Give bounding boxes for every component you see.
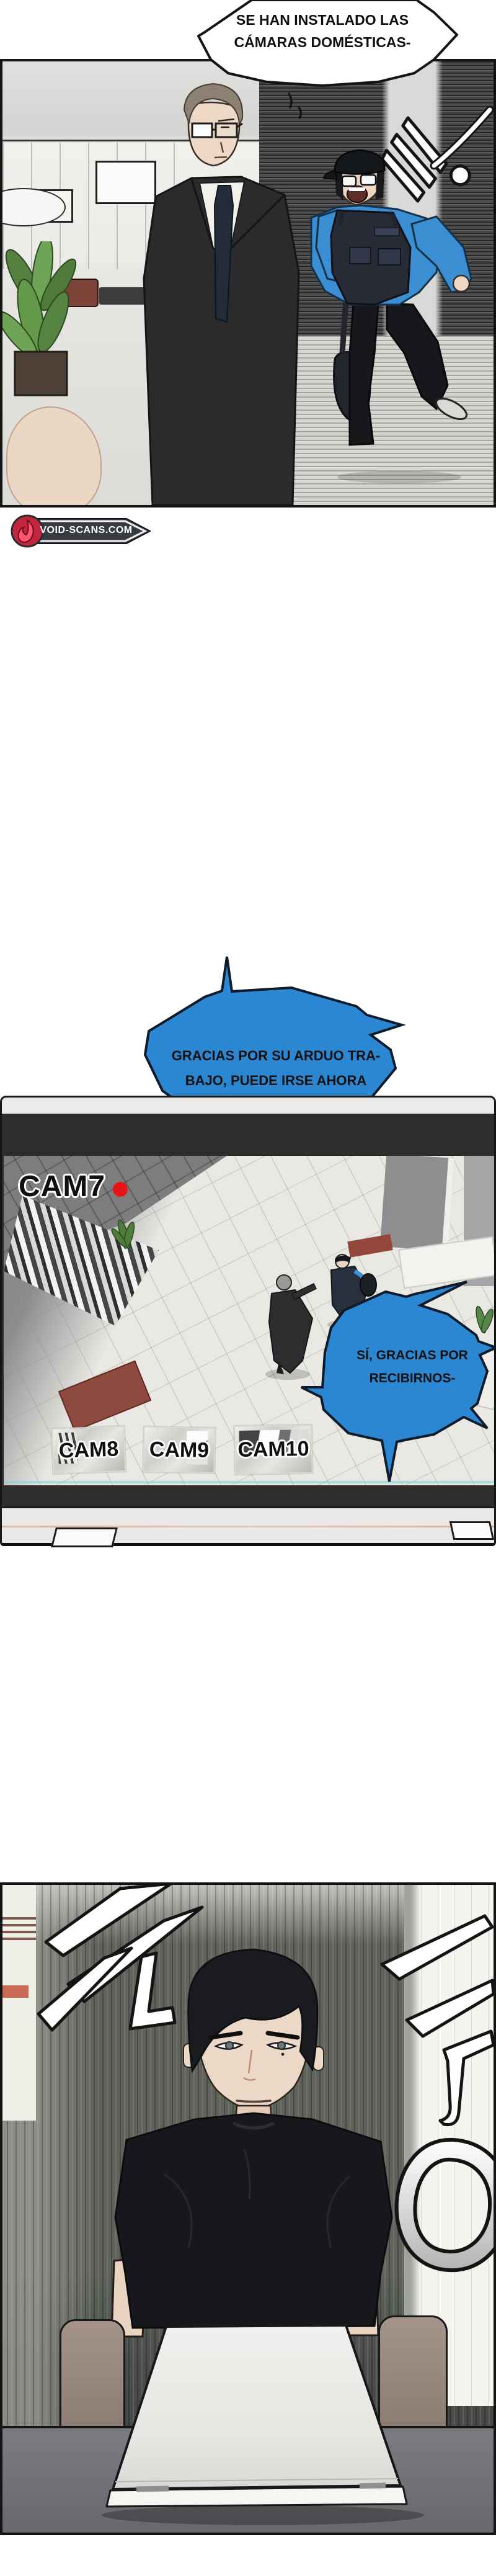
figure-protagonist (89, 1926, 424, 2360)
panel-office (0, 59, 496, 508)
cam8-thumbnail: CAM8 (51, 1426, 126, 1474)
cam9-label: CAM9 (149, 1438, 209, 1463)
credit-badge-text: VOID-SCANS.COM (40, 525, 133, 536)
speech-bubble-installed-text: SE HAN INSTALADO LAS CÁMARAS DOMÉSTICAS- (211, 9, 434, 53)
figure-courier (2, 61, 494, 505)
panel-laptop (0, 1882, 496, 2535)
cam7-label: CAM7 (19, 1169, 105, 1204)
monitor-top-bezel (0, 1096, 496, 1116)
laptop (83, 2298, 430, 2533)
rec-dot-icon (110, 1179, 130, 1199)
cam9-thumbnail: CAM9 (143, 1426, 215, 1474)
monitor-foot (51, 1527, 118, 1547)
comic-page: SE HAN INSTALADO LAS CÁMARAS DOMÉSTICAS-… (0, 0, 496, 2576)
speech-bubble-reply-text: SÍ, GRACIAS POR RECIBIRNOS- (338, 1344, 487, 1390)
monitor-foot (449, 1521, 494, 1540)
speech-bubble-thanks-text: GRACIAS POR SU ARDUO TRA- BAJO, PUEDE IR… (155, 1044, 397, 1093)
cam8-label: CAM8 (58, 1437, 119, 1463)
